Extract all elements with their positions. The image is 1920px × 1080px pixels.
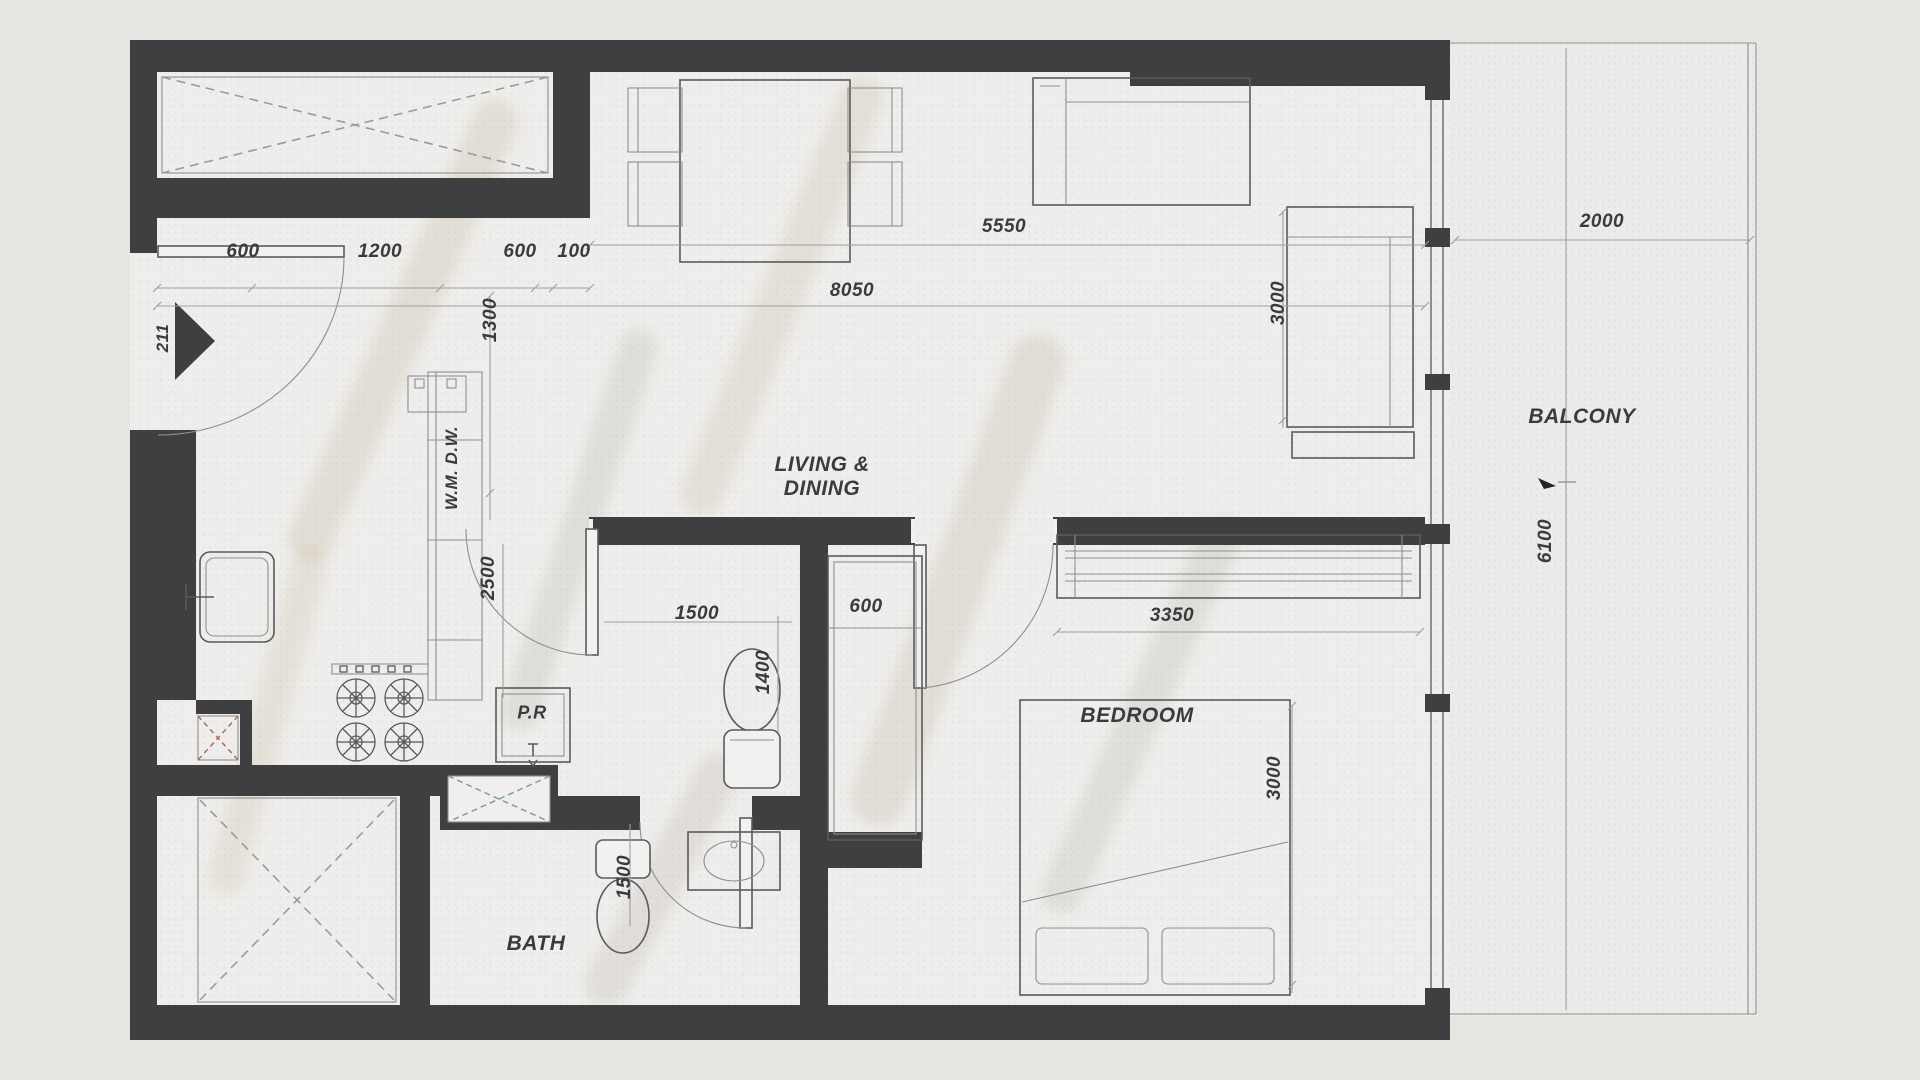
utility-shaft-large: [198, 798, 396, 1002]
dim-3350-wardrobe: 3350: [1150, 605, 1194, 627]
dim-600-counter: 600: [503, 241, 536, 263]
floor-plan-page: { "document": { "type": "apartment-floor…: [0, 0, 1920, 1080]
wall-kitchen-plumbing: [157, 430, 196, 700]
wall-shaft-right: [240, 700, 252, 765]
duct-box: [448, 776, 550, 822]
dim-3000-sofa: 3000: [1268, 281, 1290, 325]
dim-5550-living: 5550: [982, 216, 1026, 238]
bath-vanity: [688, 832, 780, 890]
pr-vanity: [496, 688, 570, 766]
stove: [332, 664, 428, 761]
dim-2000-balcony: 2000: [1580, 211, 1624, 233]
interior-doors: [466, 529, 1053, 928]
dim-1300-corridor: 1300: [480, 298, 502, 342]
dim-8050-living: 8050: [830, 280, 874, 302]
shaft-small: [198, 716, 238, 760]
bed: [1020, 700, 1290, 995]
north-arrow-icon: [1538, 478, 1576, 489]
wall-bath-top-a: [558, 796, 640, 830]
room-label-bedroom: BEDROOM: [1080, 704, 1193, 728]
wall-left-lower: [130, 430, 157, 1040]
dim-211-entry: 211: [153, 324, 173, 353]
dim-1500-bath: 1500: [614, 855, 636, 899]
wall-closet-left: [800, 545, 828, 1005]
wall-closet-right: [553, 72, 590, 178]
room-label-balcony: BALCONY: [1528, 405, 1635, 429]
floor-plan-drawing: [0, 0, 1920, 1080]
dim-1400-pr: 1400: [753, 650, 775, 694]
dim-600-closet: 600: [849, 596, 882, 618]
wall-hall: [589, 517, 915, 545]
bedroom: [1020, 535, 1420, 995]
wall-bottom: [130, 1005, 1450, 1040]
appliance-label-wm-dw: W.M. D.W.: [442, 426, 462, 510]
wall-closet-bottom: [157, 178, 590, 218]
dim-1200-kitchen: 1200: [358, 241, 402, 263]
room-label-powder-room: P.R: [517, 703, 546, 724]
entry-closet: [162, 77, 548, 173]
dim-1500-hall: 1500: [675, 603, 719, 625]
entry-arrow-icon: [175, 302, 215, 380]
wall-top: [130, 40, 1450, 72]
wall-closet-bottom-block: [828, 832, 922, 868]
wall-top-step: [1130, 72, 1450, 86]
bath-door-leaf: [740, 818, 752, 928]
walls: [130, 40, 1450, 1040]
dim-2500-kitchen: 2500: [478, 556, 500, 600]
wall-utility-right: [400, 765, 430, 1005]
sofa-sectional: [1033, 78, 1413, 427]
wall-bedroom-north: [1053, 517, 1425, 545]
tv-console: [1292, 432, 1414, 458]
dim-600-entry: 600: [226, 241, 259, 263]
room-label-bath: BATH: [507, 932, 566, 956]
wall-utility-top: [130, 765, 440, 796]
pr-door-leaf: [586, 529, 598, 655]
kitchen-counter-column: [408, 372, 482, 700]
dimension-lines: [153, 208, 1754, 993]
balcony-boundary: [1450, 43, 1756, 1014]
kitchen-sink: [186, 552, 274, 642]
wall-left-upper: [130, 40, 157, 253]
window-wall: [1425, 72, 1450, 1040]
entry: [158, 246, 344, 435]
bath-door-arc: [640, 822, 746, 928]
dim-3000-bedroom: 3000: [1264, 756, 1286, 800]
dining-table: [628, 80, 902, 262]
stove-burners: [337, 679, 423, 761]
bedroom-door-arc: [920, 545, 1053, 688]
wall-bath-top-b: [752, 796, 800, 830]
dim-6100-balcony: 6100: [1535, 519, 1557, 563]
dim-100-wall: 100: [557, 241, 590, 263]
room-label-living-dining: LIVING & DINING: [774, 453, 869, 501]
